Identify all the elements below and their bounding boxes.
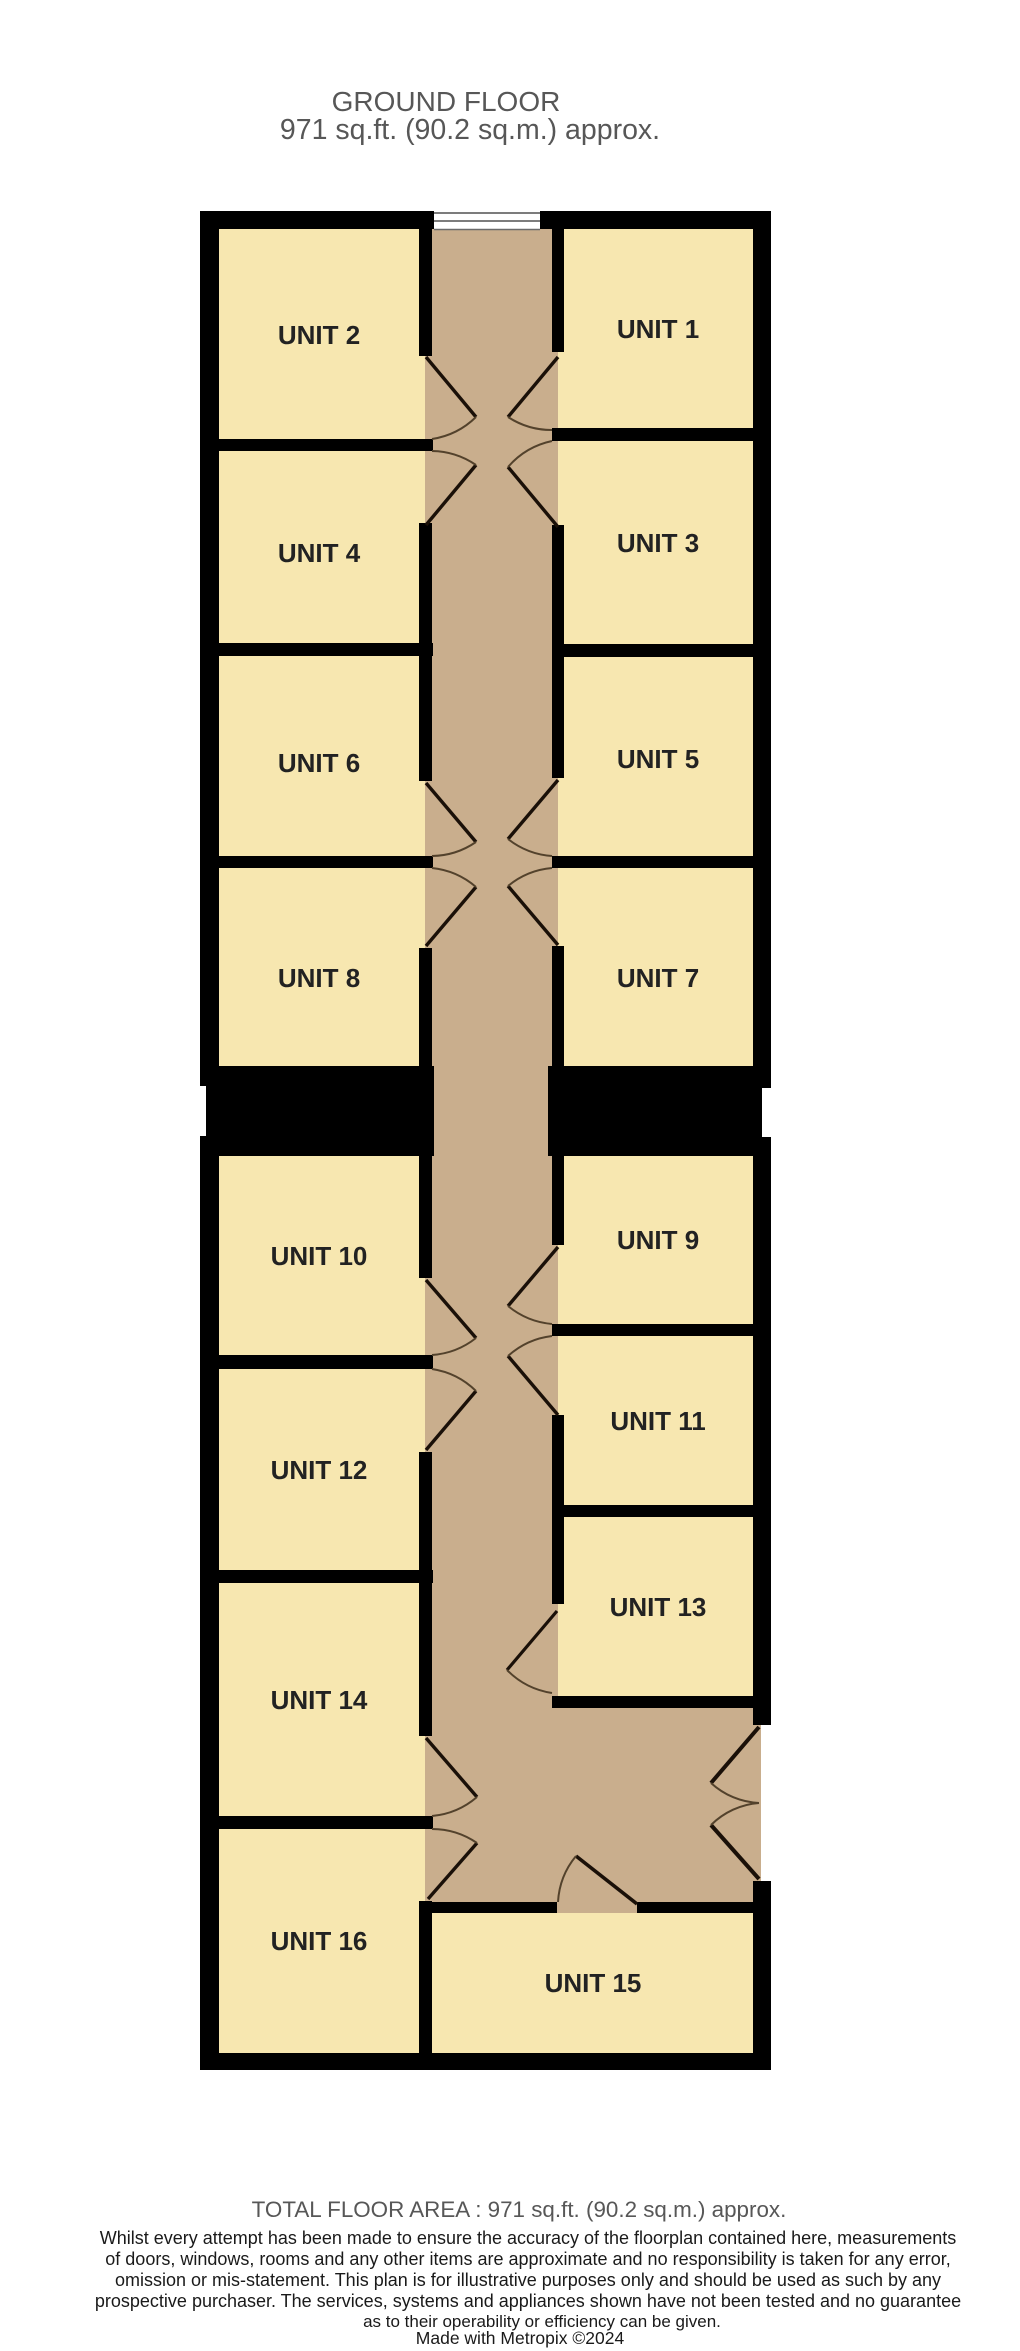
svg-text:UNIT 12: UNIT 12 xyxy=(271,1455,368,1485)
svg-text:UNIT 11: UNIT 11 xyxy=(610,1406,705,1436)
svg-text:UNIT 3: UNIT 3 xyxy=(617,528,699,558)
svg-text:UNIT 4: UNIT 4 xyxy=(278,538,361,568)
svg-text:prospective purchaser. The ser: prospective purchaser. The services, sys… xyxy=(95,2291,961,2311)
svg-text:UNIT 16: UNIT 16 xyxy=(271,1926,368,1956)
svg-text:UNIT 6: UNIT 6 xyxy=(278,748,360,778)
svg-text:UNIT 15: UNIT 15 xyxy=(545,1968,642,1998)
svg-text:971 sq.ft. (90.2 sq.m.) approx: 971 sq.ft. (90.2 sq.m.) approx. xyxy=(280,114,660,146)
svg-text:omission or mis-statement. Thi: omission or mis-statement. This plan is … xyxy=(115,2270,941,2290)
svg-text:UNIT 9: UNIT 9 xyxy=(617,1225,699,1255)
svg-text:UNIT 2: UNIT 2 xyxy=(278,320,360,350)
svg-text:TOTAL FLOOR AREA : 971 sq.ft.: TOTAL FLOOR AREA : 971 sq.ft. (90.2 sq.m… xyxy=(252,2197,787,2222)
svg-text:UNIT 14: UNIT 14 xyxy=(271,1685,368,1715)
svg-text:UNIT 7: UNIT 7 xyxy=(617,963,699,993)
svg-text:UNIT 5: UNIT 5 xyxy=(617,744,699,774)
svg-text:Whilst every attempt has been: Whilst every attempt has been made to en… xyxy=(100,2228,956,2248)
svg-text:GROUND FLOOR: GROUND FLOOR xyxy=(332,86,561,117)
svg-text:of doors, windows, rooms and a: of doors, windows, rooms and any other i… xyxy=(105,2249,950,2269)
svg-text:Made with Metropix ©2024: Made with Metropix ©2024 xyxy=(416,2328,625,2348)
svg-text:UNIT 1: UNIT 1 xyxy=(617,314,699,344)
svg-text:UNIT 13: UNIT 13 xyxy=(610,1592,707,1622)
svg-text:UNIT 10: UNIT 10 xyxy=(271,1241,368,1271)
svg-text:UNIT 8: UNIT 8 xyxy=(278,963,360,993)
